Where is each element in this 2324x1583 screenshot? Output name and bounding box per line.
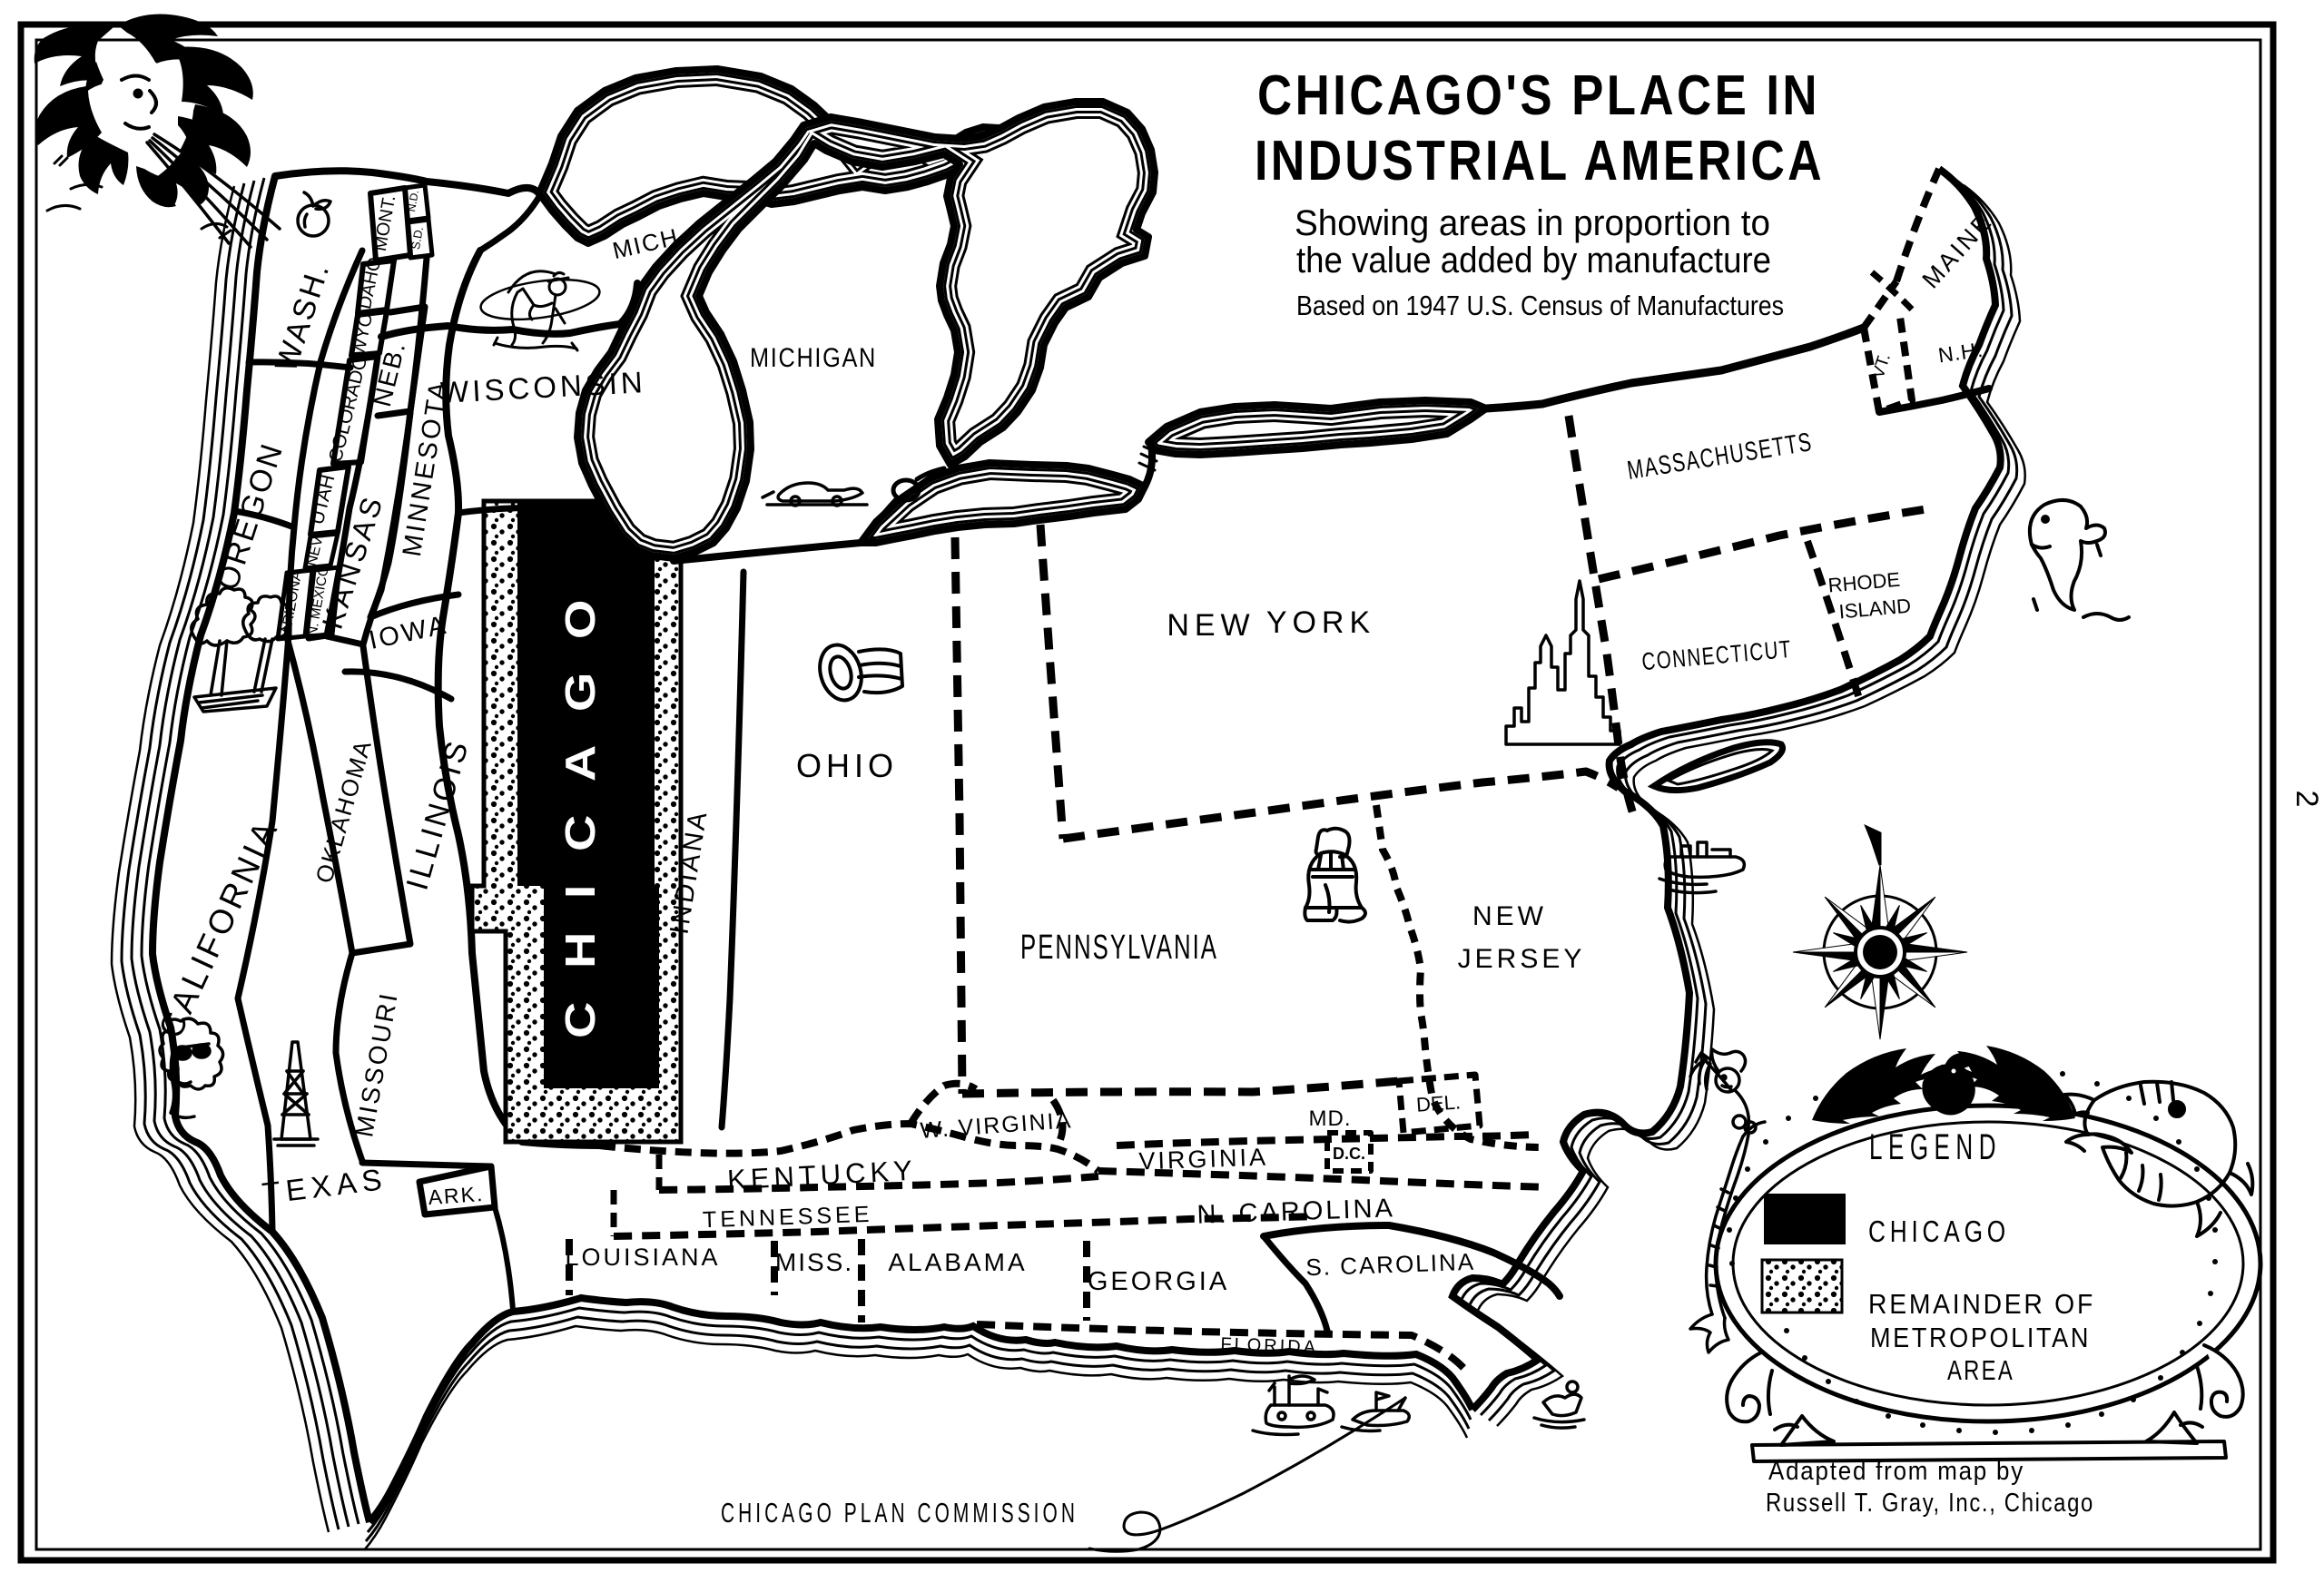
svg-text:CHICAGO'S PLACE IN: CHICAGO'S PLACE IN [1257,64,1820,127]
svg-text:Adapted from map by: Adapted from map by [1768,1457,2024,1486]
svg-text:NEW: NEW [1167,608,1255,643]
svg-text:GEORGIA: GEORGIA [1088,1267,1229,1296]
svg-text:the value added by manufacture: the value added by manufacture [1296,241,1771,280]
svg-text:2: 2 [2290,791,2324,808]
svg-text:AREA: AREA [1947,1354,2014,1386]
svg-text:VIRGINIA: VIRGINIA [1138,1144,1268,1175]
svg-text:METROPOLITAN: METROPOLITAN [1870,1322,2091,1353]
svg-text:ARK.: ARK. [428,1182,485,1209]
svg-text:INDUSTRIAL AMERICA: INDUSTRIAL AMERICA [1255,130,1825,192]
svg-text:FLORIDA: FLORIDA [1220,1334,1318,1358]
svg-text:REMAINDER OF: REMAINDER OF [1868,1288,2095,1320]
svg-text:MICHIGAN: MICHIGAN [750,343,877,373]
svg-text:MD.: MD. [1309,1106,1352,1131]
svg-text:MISS.: MISS. [775,1248,853,1276]
svg-text:JERSEY: JERSEY [1458,944,1586,974]
svg-text:CHICAGO PLAN COMMISSION: CHICAGO PLAN COMMISSION [721,1497,1078,1529]
svg-text:OHIO: OHIO [796,747,898,784]
svg-text:PENNSYLVANIA: PENNSYLVANIA [1020,929,1218,967]
svg-text:D.C.: D.C. [1333,1145,1365,1163]
svg-text:LOUISIANA: LOUISIANA [565,1244,720,1271]
svg-text:Russell T. Gray, Inc., Chicago: Russell T. Gray, Inc., Chicago [1766,1489,2094,1518]
svg-text:NEW: NEW [1472,901,1547,931]
svg-text:ALABAMA: ALABAMA [888,1248,1027,1276]
svg-text:CHICAGO: CHICAGO [1868,1214,2010,1248]
svg-text:CHICAGO: CHICAGO [556,566,604,1038]
svg-text:Based on 1947 U.S. Census of M: Based on 1947 U.S. Census of Manufacture… [1296,290,1784,321]
svg-text:YORK: YORK [1266,605,1375,640]
svg-text:LEGEND: LEGEND [1869,1127,2002,1167]
svg-text:Showing areas in proportion to: Showing areas in proportion to [1295,203,1770,243]
